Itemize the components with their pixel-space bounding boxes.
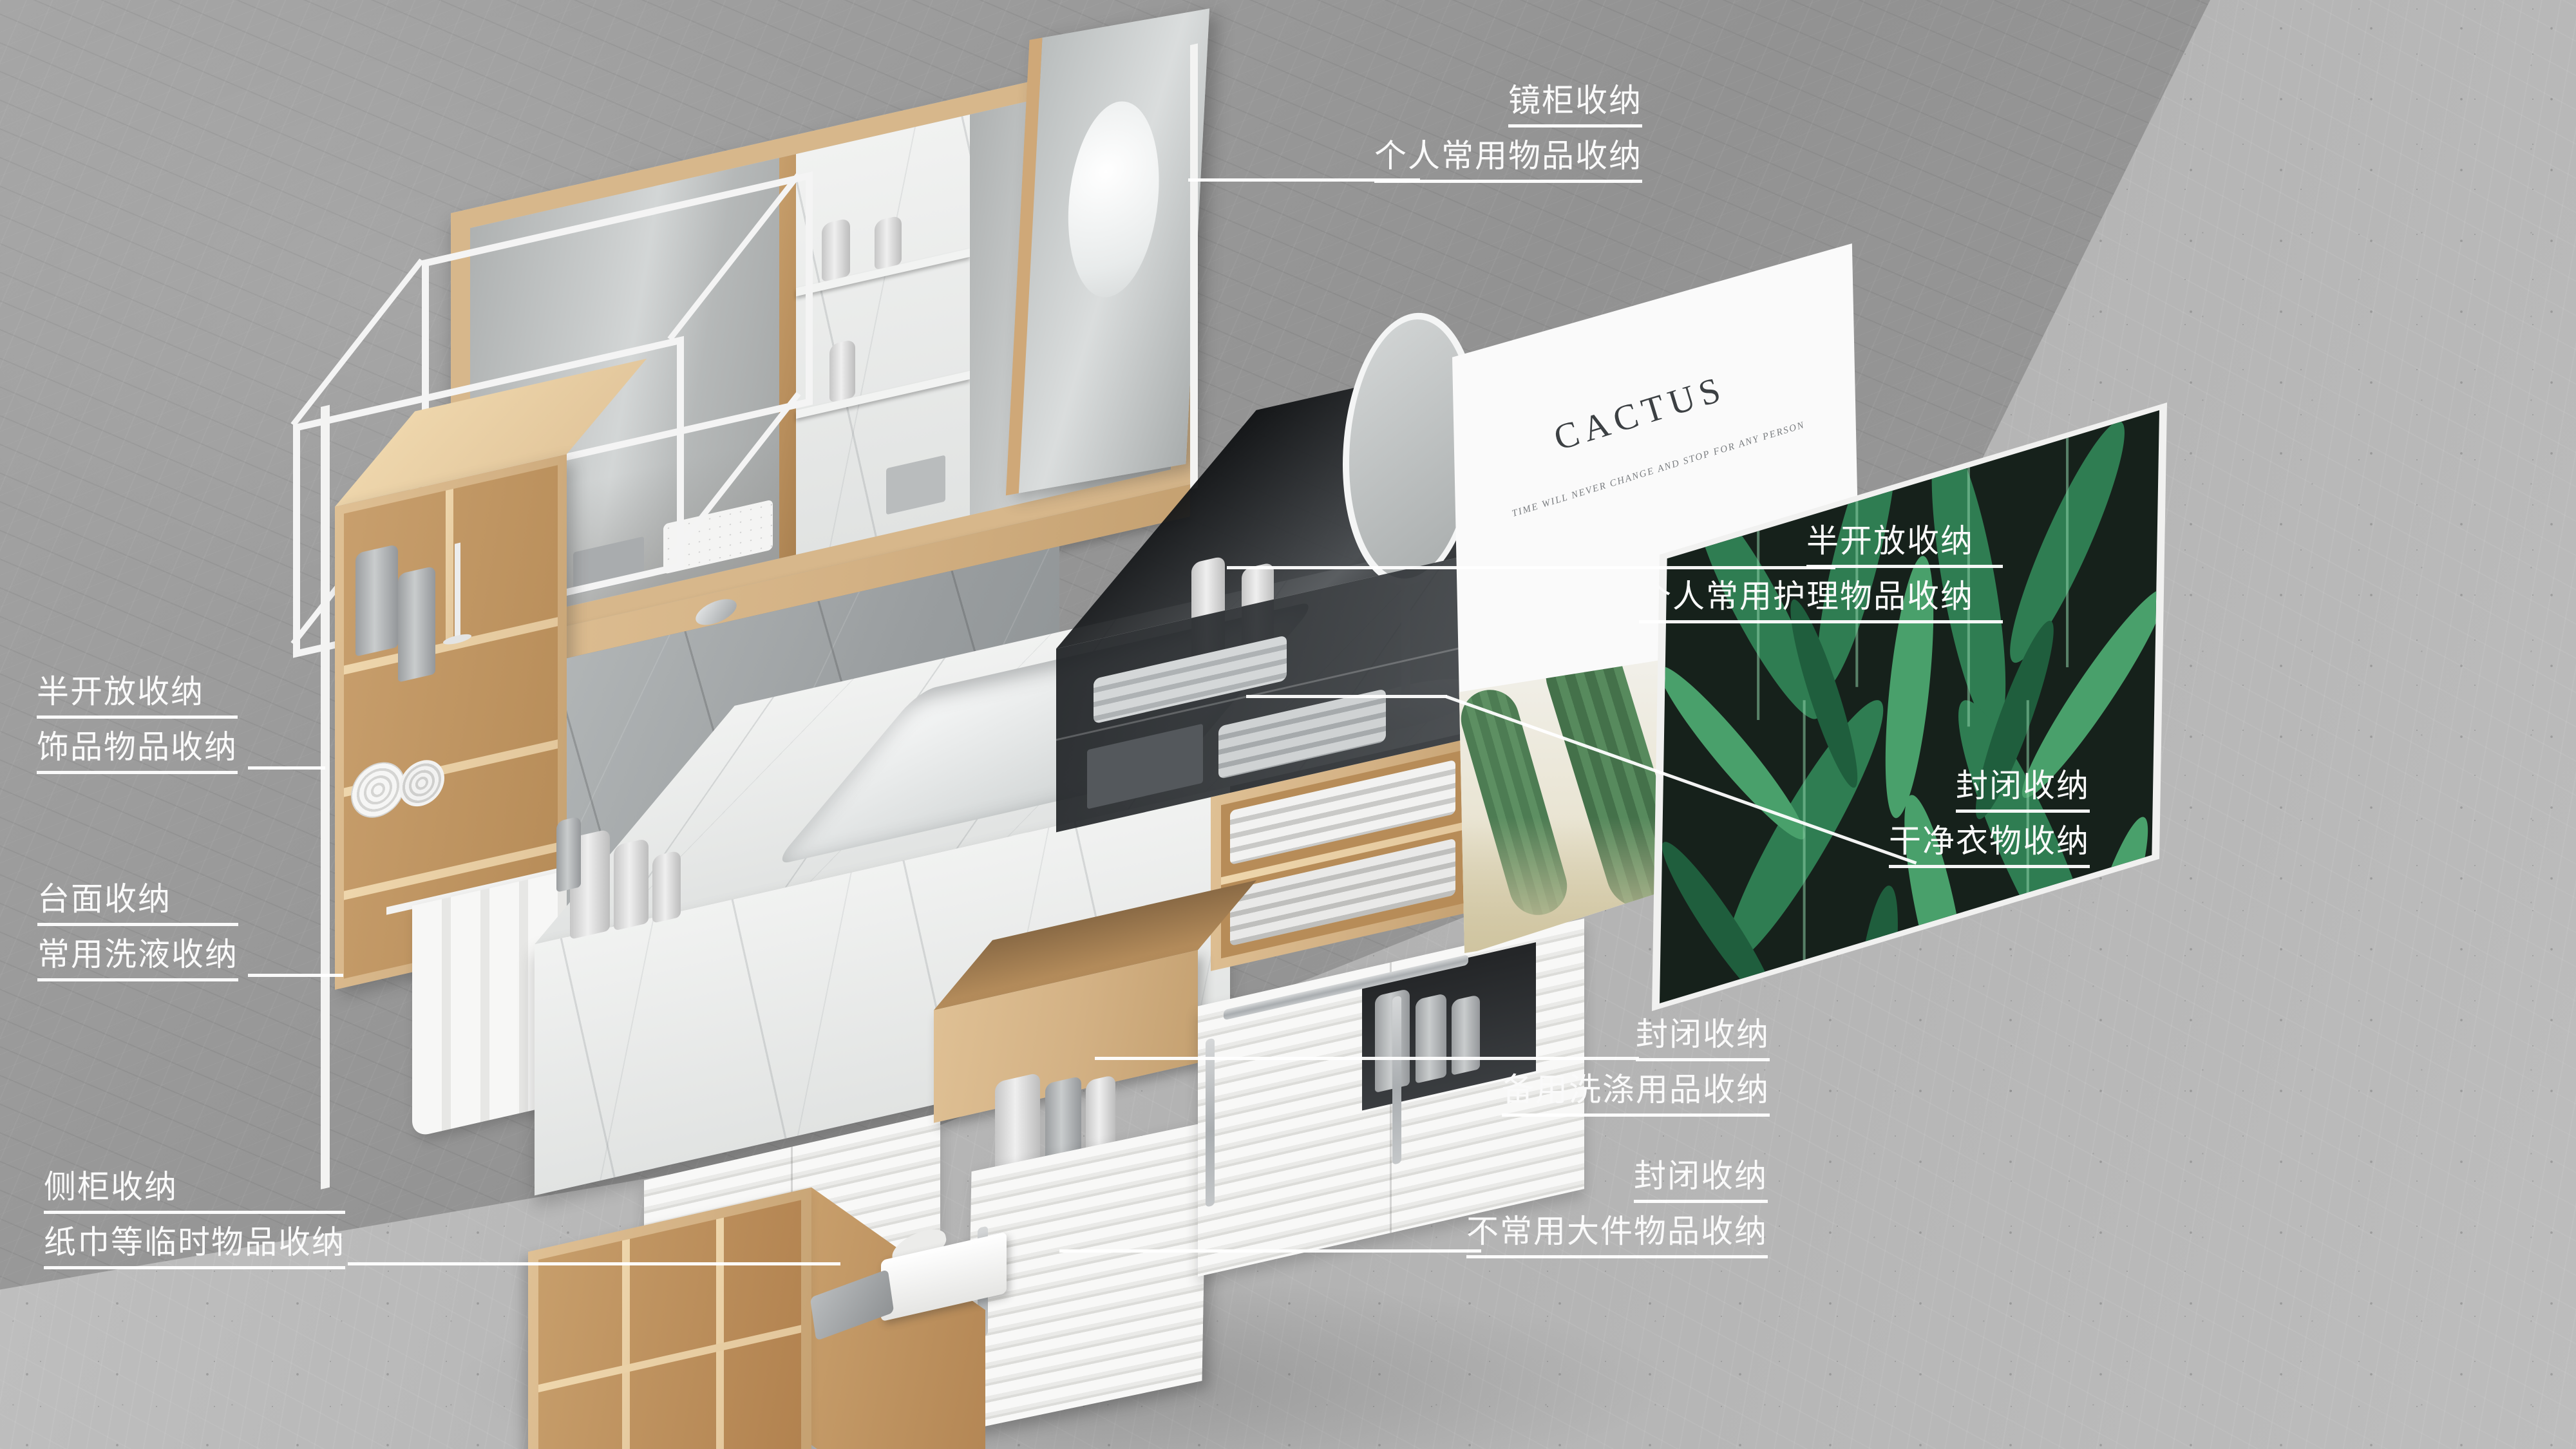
- leader-line-side-cabinet: [348, 1262, 840, 1265]
- cabinet-white-edge: [1190, 43, 1198, 489]
- cabinet-divider: [622, 1239, 630, 1449]
- lotion-bottle: [614, 838, 649, 931]
- side-open-cabinet: [528, 1188, 811, 1449]
- label-line: 备用洗涤用品收纳: [1502, 1072, 1770, 1117]
- annotated-vanity-diagram: CACTUS TIME WILL NEVER CHANGE AND STOP F…: [0, 0, 2576, 1449]
- lotion-bottle: [652, 850, 681, 923]
- cosmetic-tube: [822, 218, 850, 282]
- label-side-cabinet: 侧柜收纳 纸巾等临时物品收纳: [44, 1169, 345, 1269]
- storage-box: [886, 455, 945, 515]
- folded-towels: [1094, 635, 1287, 724]
- cabinet-interior: [538, 1200, 801, 1449]
- label-line: 个人常用护理物品收纳: [1639, 578, 2003, 623]
- label-line: 半开放收纳: [1806, 523, 2003, 568]
- label-line: 台面收纳: [37, 881, 238, 926]
- label-line: 不常用大件物品收纳: [1466, 1213, 1768, 1258]
- white-frame-post: [321, 405, 330, 1189]
- label-line: 半开放收纳: [37, 674, 238, 719]
- cabinet-handle: [1392, 996, 1401, 1165]
- label-line: 封闭收纳: [1634, 1158, 1768, 1203]
- label-closed-large-items: 封闭收纳 不常用大件物品收纳: [1466, 1158, 1768, 1258]
- door-oval-mirror: [1063, 94, 1164, 305]
- label-line: 饰品物品收纳: [37, 729, 238, 774]
- leader-line-countertop: [248, 974, 343, 977]
- cosmetic-tube: [875, 215, 902, 270]
- label-closed-clean-clothes: 封闭收纳 干净衣物收纳: [1889, 768, 2090, 868]
- poster-title: CACTUS: [1549, 368, 1730, 459]
- candle: [355, 544, 398, 657]
- cabinet-divider: [716, 1218, 724, 1449]
- cosmetic-tube: [829, 339, 855, 402]
- label-countertop: 台面收纳 常用洗液收纳: [37, 881, 238, 981]
- label-line: 纸巾等临时物品收纳: [44, 1224, 345, 1269]
- candle: [398, 565, 435, 682]
- label-semi-open-care: 半开放收纳 个人常用护理物品收纳: [1639, 523, 2003, 623]
- dark-box: [1087, 724, 1203, 810]
- spray-bottle: [1452, 994, 1480, 1075]
- leader-line-large-items: [1059, 1249, 1481, 1253]
- leader-line-semi-open-deco: [248, 766, 325, 770]
- label-semi-open-deco: 半开放收纳 饰品物品收纳: [37, 674, 238, 774]
- candlestick: [455, 543, 460, 641]
- label-mirror-cabinet: 镜柜收纳 个人常用物品收纳: [1374, 82, 1642, 183]
- label-line: 封闭收纳: [1956, 768, 2090, 813]
- label-line: 侧柜收纳: [44, 1169, 345, 1214]
- niche-shelf: [796, 371, 970, 419]
- spray-bottle: [1416, 993, 1446, 1084]
- label-line: 封闭收纳: [1636, 1016, 1770, 1061]
- cabinet-divider: [446, 489, 453, 643]
- label-line: 干净衣物收纳: [1889, 823, 2090, 868]
- mirror-cabinet-niche: [796, 115, 970, 554]
- mirror-cabinet-open-door: [1006, 8, 1209, 495]
- label-line: 常用洗液收纳: [37, 936, 238, 981]
- label-line: 个人常用物品收纳: [1374, 138, 1642, 183]
- cabinet-handle: [1206, 1038, 1215, 1207]
- label-closed-spare-wash: 封闭收纳 备用洗涤用品收纳: [1502, 1016, 1770, 1117]
- leader-line-clean-clothes-a: [1246, 695, 1447, 698]
- lotion-bottle: [556, 816, 581, 893]
- label-line: 镜柜收纳: [1508, 82, 1642, 128]
